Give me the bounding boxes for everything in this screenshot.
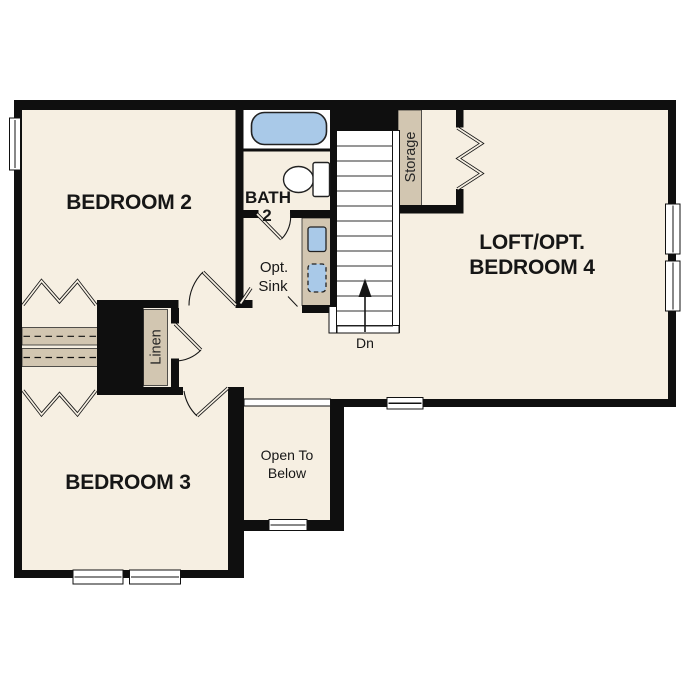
wall-open-below-right [330, 399, 344, 531]
wall-bedroom3-top [143, 387, 183, 395]
wall-stair-top-mass [330, 109, 398, 131]
room-label-loft-line2: BEDROOM 4 [469, 256, 595, 279]
room-label-bedroom3: BEDROOM 3 [65, 471, 190, 494]
stair-railing-right [393, 131, 400, 333]
wall-bath-bottom-right [290, 210, 337, 218]
stair-railing-bottom [337, 326, 399, 334]
wall-storage-stub-bottom [456, 189, 464, 206]
wall-hall-stub [236, 300, 253, 308]
label-open-to-below-line2: Below [268, 465, 307, 481]
toilet-tank-icon [313, 163, 330, 197]
wall-linen-top [143, 300, 179, 308]
sink-icon [308, 227, 326, 252]
label-storage: Storage [403, 132, 419, 183]
wall-closet-chunk [97, 300, 144, 395]
wall-tub-niche-bottom [244, 149, 331, 152]
label-opt-sink-line2: Sink [258, 278, 288, 295]
room-label-bath-line1: BATH [245, 188, 291, 207]
wall-left [14, 100, 22, 578]
floor-plan: BEDROOM 2 BATH 2 LOFT/OPT. BEDROOM 4 BED… [0, 0, 687, 687]
bathtub-icon [252, 113, 327, 145]
wall-bedroom3-right [228, 387, 244, 578]
room-label-bedroom2: BEDROOM 2 [66, 191, 191, 214]
stair-railing-left [329, 307, 337, 334]
wall-storage-bottom [398, 205, 464, 214]
label-opt-sink-line1: Opt. [260, 259, 288, 276]
optional-sink-dashed-icon [308, 264, 326, 292]
wall-loft-bottom [330, 399, 676, 407]
wall-bath-door-stub-left [243, 210, 259, 218]
wall-bedroom2-right [236, 100, 244, 308]
wall-storage-stub-top [456, 100, 464, 128]
open-below-railing [244, 399, 331, 406]
label-stairs-down: Dn [356, 335, 374, 351]
label-linen: Linen [149, 329, 165, 364]
wall-top [14, 100, 676, 110]
wall-bath-stairs [330, 100, 337, 307]
wall-linen-stub-top [171, 308, 179, 324]
room-label-loft-line1: LOFT/OPT. [479, 231, 585, 254]
floor-plan-page: BEDROOM 2 BATH 2 LOFT/OPT. BEDROOM 4 BED… [0, 0, 687, 687]
label-open-to-below-line1: Open To [261, 447, 314, 463]
room-label-bath-line2: 2 [262, 206, 271, 225]
